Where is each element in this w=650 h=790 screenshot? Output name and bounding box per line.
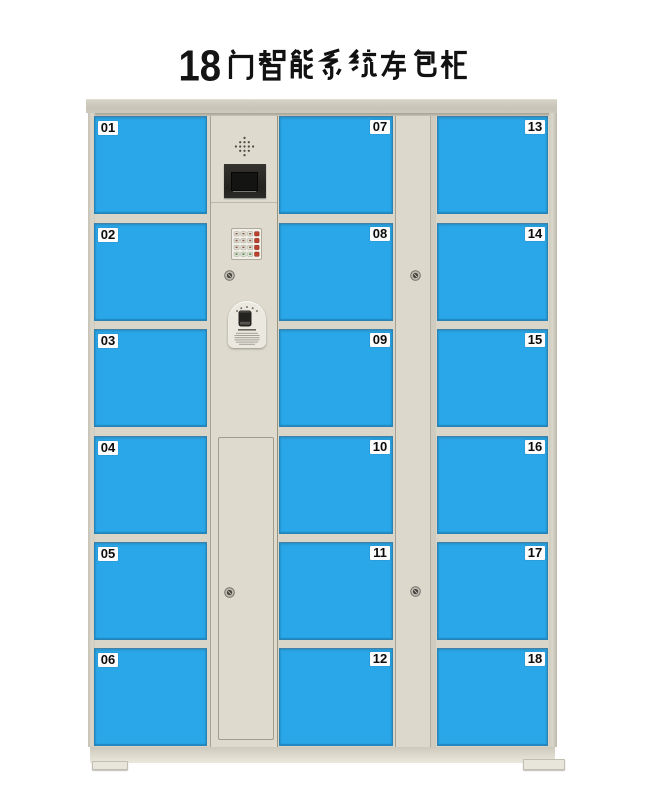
svg-text:18: 18 [180,45,221,85]
